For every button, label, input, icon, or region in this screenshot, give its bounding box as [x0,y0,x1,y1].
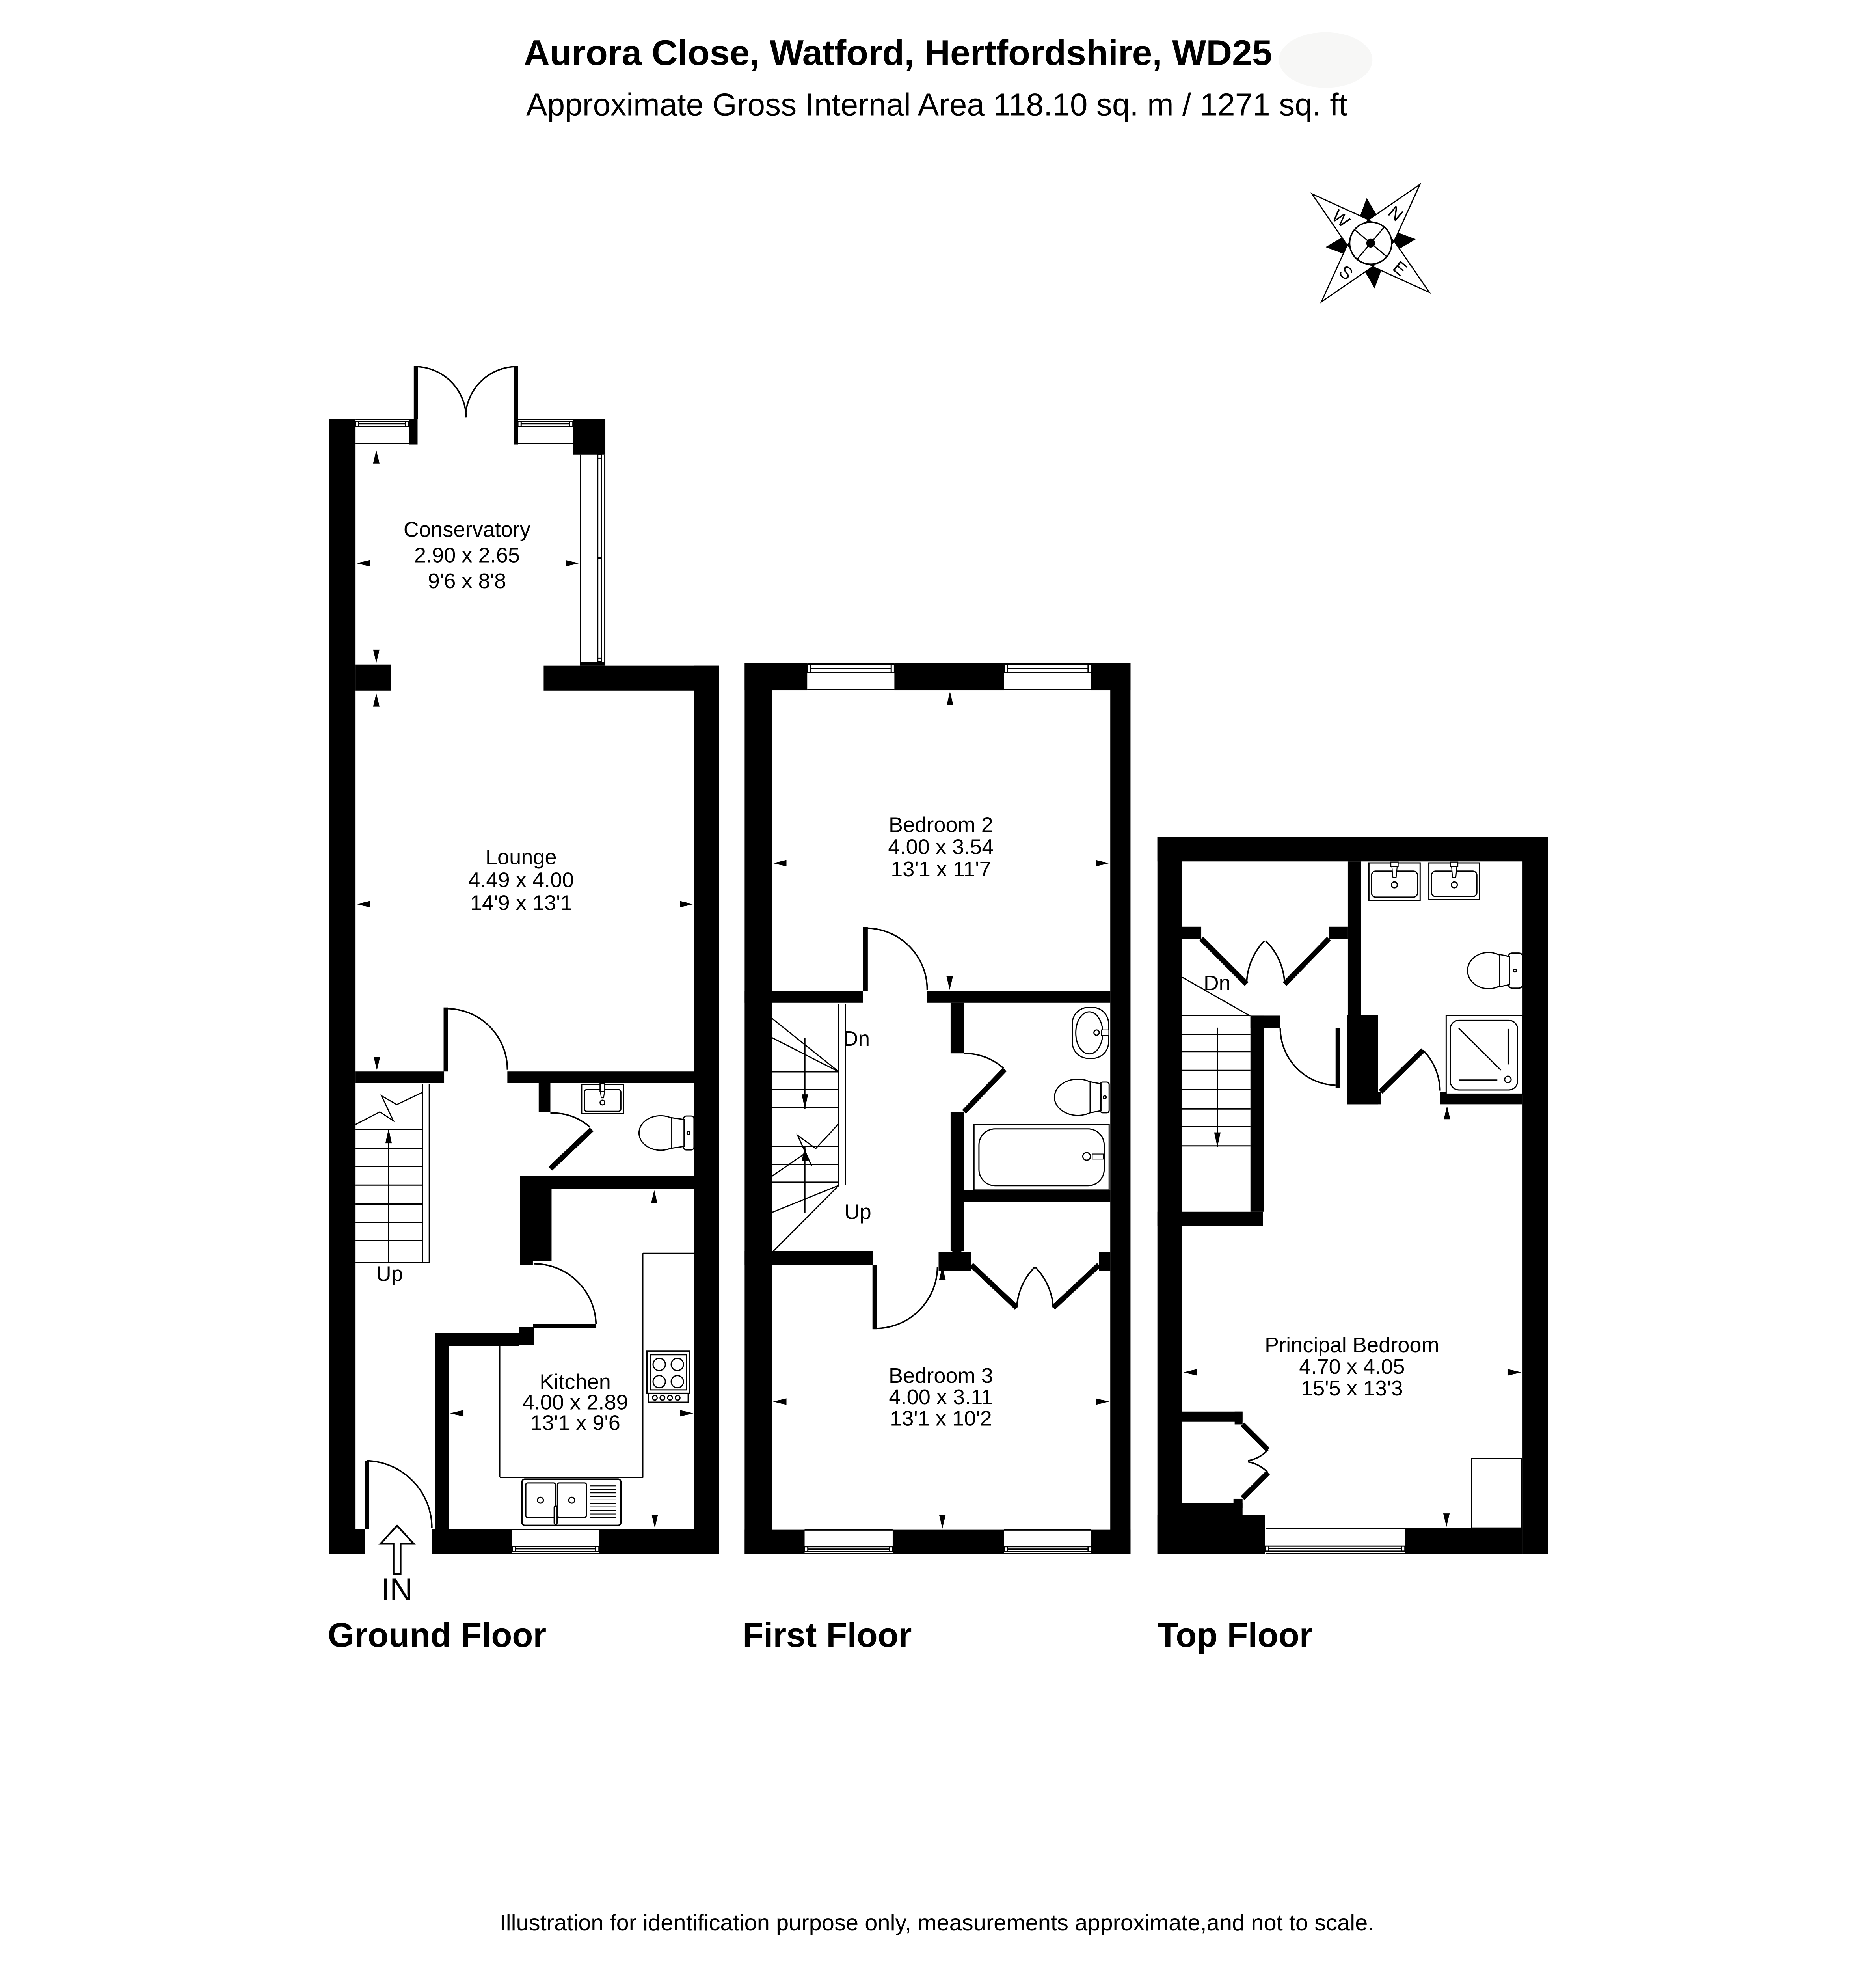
svg-text:14'9 x 13'1: 14'9 x 13'1 [470,891,572,915]
svg-text:13'1 x 10'2: 13'1 x 10'2 [890,1407,992,1430]
svg-text:9'6 x 8'8: 9'6 x 8'8 [428,569,506,593]
svg-text:IN: IN [381,1572,413,1607]
svg-text:Kitchen: Kitchen [540,1370,611,1394]
svg-text:Principal Bedroom: Principal Bedroom [1265,1333,1439,1357]
svg-text:4.00 x 3.11: 4.00 x 3.11 [889,1385,993,1409]
svg-text:Aurora Close, Watford, Hertfor: Aurora Close, Watford, Hertfordshire, WD… [524,33,1272,73]
svg-text:Lounge: Lounge [486,846,557,869]
svg-text:Dn: Dn [1204,972,1230,995]
svg-text:Illustration for identificatio: Illustration for identification purpose … [500,1910,1374,1936]
svg-text:Bedroom 3: Bedroom 3 [889,1364,993,1388]
svg-text:15'5 x 13'3: 15'5 x 13'3 [1301,1377,1403,1400]
svg-text:Up: Up [844,1200,871,1224]
svg-text:2.90 x 2.65: 2.90 x 2.65 [414,544,520,567]
svg-text:Bedroom 2: Bedroom 2 [889,813,993,836]
svg-text:13'1 x 9'6: 13'1 x 9'6 [530,1411,620,1435]
svg-text:Ground Floor: Ground Floor [328,1616,547,1654]
svg-text:Dn: Dn [843,1027,870,1051]
svg-text:4.00 x 2.89: 4.00 x 2.89 [523,1391,628,1414]
svg-text:First Floor: First Floor [743,1616,912,1654]
svg-text:Up: Up [376,1263,403,1286]
svg-text:4.49 x 4.00: 4.49 x 4.00 [468,868,574,892]
svg-text:Approximate Gross Internal Are: Approximate Gross Internal Area 118.10 s… [526,86,1347,122]
svg-text:Top Floor: Top Floor [1158,1616,1313,1654]
svg-text:4.70 x 4.05: 4.70 x 4.05 [1299,1355,1405,1379]
svg-text:13'1 x 11'7: 13'1 x 11'7 [891,857,991,881]
svg-text:Conservatory: Conservatory [404,518,530,541]
svg-text:4.00 x 3.54: 4.00 x 3.54 [888,835,994,859]
